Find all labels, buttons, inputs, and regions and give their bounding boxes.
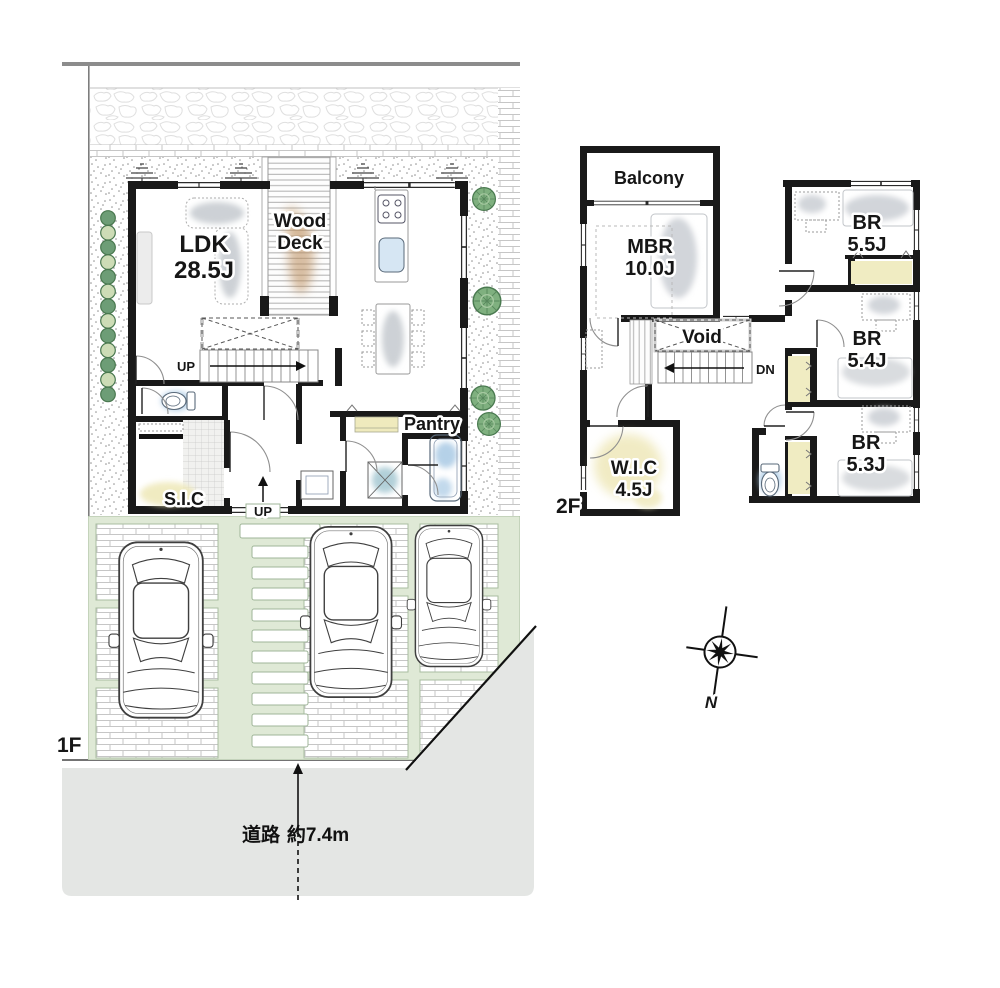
br2-size: 5.4J bbox=[848, 350, 887, 372]
wic-size: 4.5J bbox=[616, 480, 653, 501]
car-icon-3 bbox=[407, 525, 491, 666]
planting-strip-right bbox=[468, 185, 500, 515]
floor2-plan: Balcony MBR 10.0J Void DN BR 5.5J BR 5.4… bbox=[556, 146, 920, 518]
br1-label: BR bbox=[853, 212, 882, 234]
floor-plan-drawing: LDK 28.5J Wood Deck UP Pantry S.I.C bbox=[0, 0, 1000, 988]
floor1-house: LDK 28.5J Wood Deck UP Pantry S.I.C bbox=[128, 157, 468, 514]
pantry-label: Pantry bbox=[404, 414, 460, 434]
stair-louver bbox=[630, 320, 652, 384]
floor2-label: 2F bbox=[556, 495, 581, 518]
br3-label: BR bbox=[852, 432, 881, 454]
ldk-label: LDK bbox=[179, 231, 229, 258]
balcony-label: Balcony bbox=[614, 168, 684, 188]
tv-board bbox=[137, 232, 152, 304]
stairs-down-label: DN bbox=[756, 362, 775, 377]
wood-deck-label-1: Wood bbox=[274, 211, 326, 232]
br3-size: 5.3J bbox=[847, 454, 886, 476]
floor1-label: 1F bbox=[57, 734, 82, 757]
ldk-size: 28.5J bbox=[174, 257, 234, 284]
car-icon-2 bbox=[301, 527, 402, 697]
car-icon-1 bbox=[109, 542, 213, 717]
toilet-icon-2f bbox=[761, 464, 779, 496]
gravel-area bbox=[90, 88, 520, 145]
entry-up-label: UP bbox=[254, 504, 272, 519]
pantry-closet bbox=[355, 417, 398, 432]
sink-icon bbox=[379, 238, 404, 272]
road-label: 道路 bbox=[242, 823, 281, 846]
compass-icon: N bbox=[679, 602, 764, 712]
wic-label: W.I.C bbox=[611, 458, 658, 479]
floor-plan-page: LDK 28.5J Wood Deck UP Pantry S.I.C bbox=[0, 0, 1000, 988]
mbr-size: 10.0J bbox=[625, 258, 675, 280]
void-label: Void bbox=[682, 327, 722, 348]
stove-icon bbox=[378, 195, 405, 223]
stairs-up-label: UP bbox=[177, 359, 195, 374]
br1-closet bbox=[851, 261, 912, 284]
brick-border-top bbox=[90, 145, 520, 157]
kitchen bbox=[375, 186, 408, 282]
br1-size: 5.5J bbox=[848, 234, 887, 256]
compass-north-label: N bbox=[705, 693, 718, 712]
site-boundary-top bbox=[62, 62, 520, 66]
sic-label: S.I.C bbox=[164, 489, 204, 509]
mbr-label: MBR bbox=[627, 236, 673, 258]
wood-deck-label-2: Deck bbox=[277, 233, 323, 254]
br3-closet bbox=[788, 442, 810, 494]
road-width-label: 約7.4m bbox=[287, 823, 349, 846]
br2-label: BR bbox=[853, 328, 882, 350]
